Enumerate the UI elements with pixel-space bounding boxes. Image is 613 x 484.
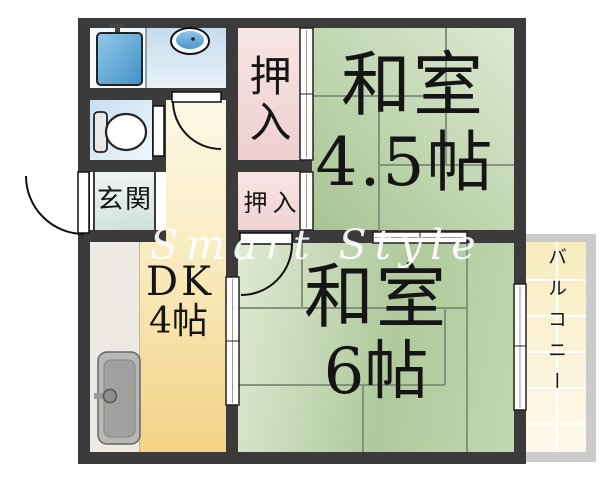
room-label-balcony: バルコニー — [546, 247, 565, 402]
room-bath — [90, 28, 146, 90]
floor-plan: 和室 4.5帖 和室 6帖 DK 4帖 玄関 押入 押入 バルコニー Smart… — [0, 0, 613, 484]
room-label-washitsu45-name: 和室 — [312, 50, 514, 120]
wall-bath-bottom — [90, 88, 228, 100]
wall-top — [78, 18, 526, 28]
room-label-washitsu6-name: 和室 — [262, 262, 490, 332]
balcony-frame-bottom — [526, 452, 596, 462]
bath-divider — [145, 28, 147, 90]
wall-left — [78, 18, 90, 464]
room-label-washitsu45-size: 4.5帖 — [295, 130, 515, 196]
room-label-washitsu6-size: 6帖 — [262, 340, 490, 404]
kitchen-counter-area — [90, 242, 140, 452]
watermark: Smart Style — [150, 221, 484, 269]
room-label-dk-size: 4帖 — [149, 304, 208, 340]
room-label-closet-lower: 押入 — [228, 191, 312, 215]
wall-toilet-right — [152, 100, 166, 160]
room-label-genkan: 玄関 — [94, 187, 156, 213]
room-label-closet-upper: 押入 — [246, 54, 288, 146]
wall-bottom — [78, 452, 526, 464]
room-toilet — [90, 100, 152, 160]
room-washroom — [146, 28, 228, 90]
balcony-frame-right — [586, 234, 596, 460]
wall-toilet-bottom — [90, 160, 166, 172]
